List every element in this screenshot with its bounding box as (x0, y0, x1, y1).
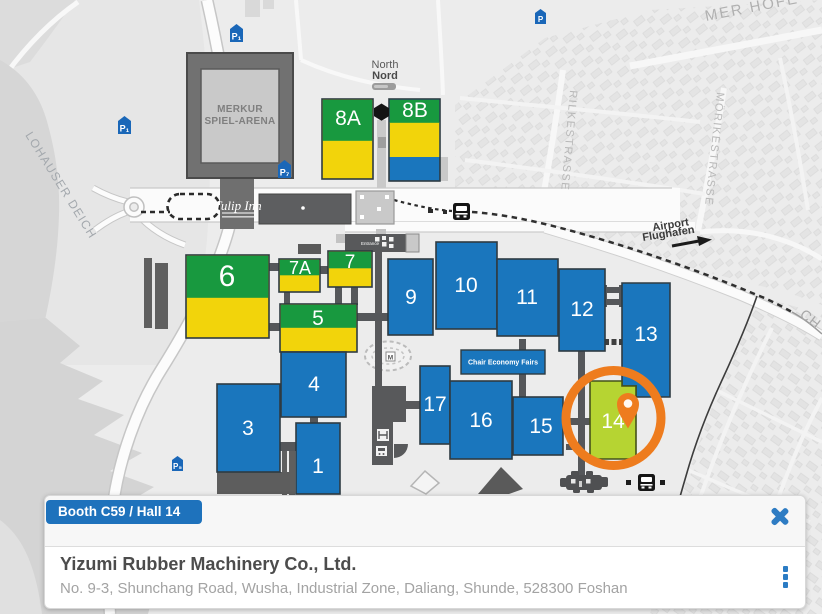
svg-text:10: 10 (454, 274, 477, 297)
svg-text:12: 12 (570, 298, 593, 321)
svg-text:M: M (388, 355, 393, 362)
svg-text:SPIEL-ARENA: SPIEL-ARENA (204, 116, 275, 127)
svg-text:Tulip Inn: Tulip Inn (214, 198, 261, 213)
svg-text:P₇: P₇ (280, 168, 290, 178)
svg-text:11: 11 (516, 286, 538, 309)
svg-text:P: P (538, 15, 544, 24)
svg-text:1: 1 (312, 455, 324, 478)
svg-text:8A: 8A (335, 107, 361, 130)
svg-text:7A: 7A (289, 258, 311, 278)
svg-text:Nord: Nord (372, 70, 398, 82)
svg-text:8B: 8B (402, 99, 428, 122)
svg-text:17: 17 (423, 393, 446, 416)
svg-text:3: 3 (242, 417, 254, 440)
svg-text:Entrance: Entrance (361, 241, 380, 246)
svg-text:4: 4 (308, 373, 320, 396)
svg-text:15: 15 (529, 415, 552, 438)
svg-text:9: 9 (405, 286, 417, 309)
svg-text:6: 6 (219, 260, 236, 293)
svg-text:5: 5 (312, 307, 324, 330)
svg-text:16: 16 (469, 409, 492, 432)
svg-text:MERKUR: MERKUR (217, 104, 263, 115)
svg-text:P₅: P₅ (173, 462, 182, 471)
svg-text:13: 13 (634, 323, 657, 346)
svg-text:P₁: P₁ (232, 32, 242, 42)
svg-text:P₁: P₁ (120, 124, 130, 134)
svg-text:Chair Economy Fairs: Chair Economy Fairs (468, 360, 538, 367)
svg-text:7: 7 (345, 252, 356, 273)
